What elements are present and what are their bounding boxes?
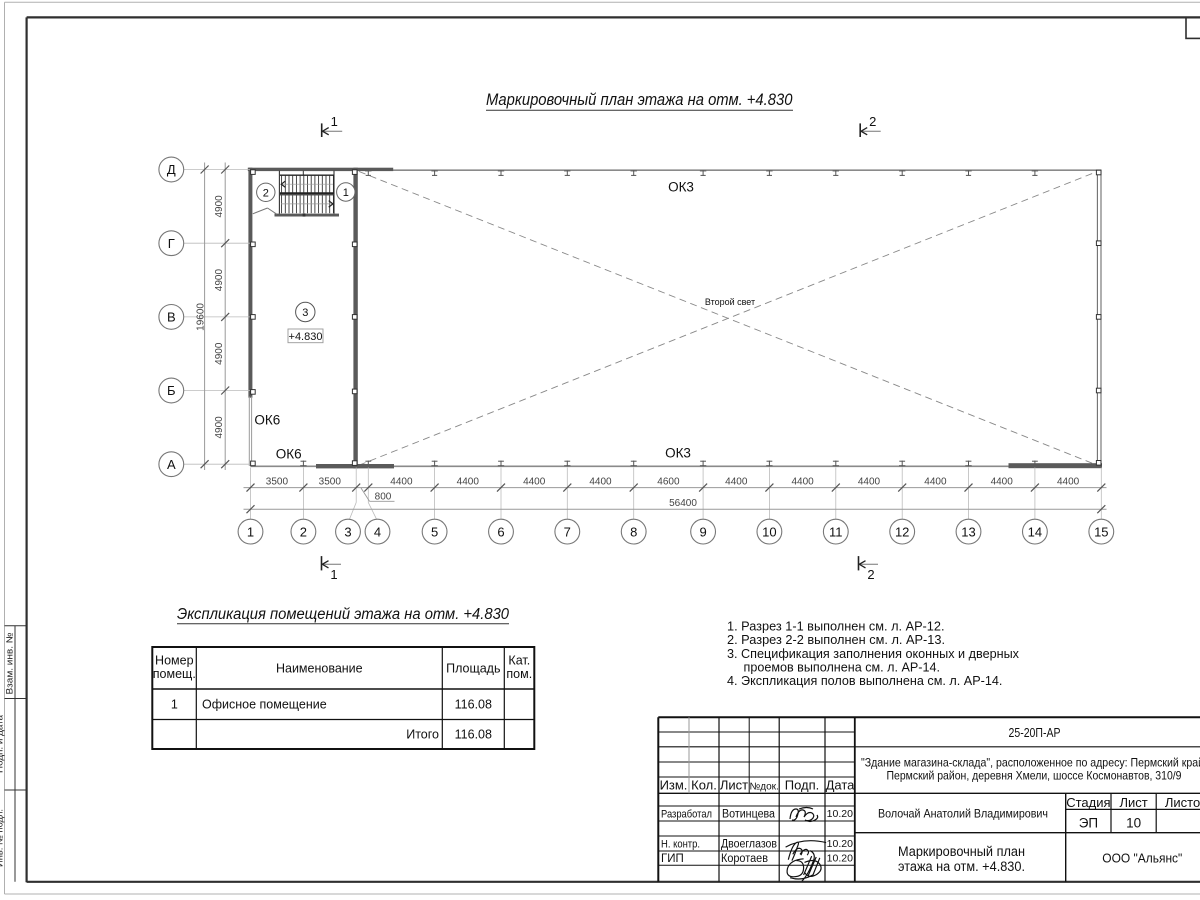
svg-text:10: 10 [762, 524, 776, 539]
svg-text:Дата: Дата [826, 778, 856, 793]
svg-text:Пермский район, деревня Хмели,: Пермский район, деревня Хмели, шоссе Кос… [887, 768, 1182, 782]
svg-text:ГИП: ГИП [661, 853, 684, 865]
svg-text:Кол.: Кол. [691, 778, 717, 793]
svg-text:5: 5 [431, 524, 438, 539]
svg-text:4400: 4400 [791, 476, 814, 487]
svg-text:1: 1 [343, 187, 349, 199]
svg-text:13: 13 [961, 524, 975, 539]
svg-text:Изм.: Изм. [660, 778, 688, 793]
svg-text:ООО "Альянс": ООО "Альянс" [1102, 851, 1182, 866]
svg-text:ОК3: ОК3 [665, 445, 691, 460]
svg-text:4900: 4900 [214, 416, 225, 439]
svg-text:Маркировочный план: Маркировочный план [898, 844, 1025, 859]
svg-text:+4.830: +4.830 [289, 331, 323, 343]
svg-text:4400: 4400 [523, 476, 546, 487]
svg-text:4400: 4400 [457, 476, 480, 487]
svg-text:2: 2 [869, 114, 876, 129]
svg-text:3: 3 [344, 524, 351, 539]
svg-text:пом.: пом. [506, 667, 532, 681]
svg-text:10: 10 [1126, 816, 1141, 831]
svg-text:Итого: Итого [406, 728, 439, 742]
svg-text:Разработал: Разработал [661, 809, 712, 821]
svg-text:Экспликация помещений этажа на: Экспликация помещений этажа на отм. +4.8… [177, 606, 509, 623]
svg-text:116.08: 116.08 [455, 728, 492, 742]
svg-text:А: А [167, 457, 176, 472]
svg-text:56400: 56400 [669, 498, 697, 509]
svg-text:ОК6: ОК6 [254, 412, 280, 427]
svg-text:8: 8 [630, 524, 637, 539]
svg-text:Подп.: Подп. [785, 778, 820, 793]
svg-text:4900: 4900 [214, 342, 225, 365]
svg-text:1: 1 [331, 114, 338, 129]
svg-text:3: 3 [302, 307, 308, 319]
svg-text:4400: 4400 [991, 476, 1014, 487]
svg-text:"Здание магазина-склада", расп: "Здание магазина-склада", расположенное … [861, 755, 1200, 769]
svg-text:3500: 3500 [266, 476, 289, 487]
svg-text:Д: Д [167, 162, 176, 177]
svg-text:Подп. и дата: Подп. и дата [0, 715, 5, 773]
svg-text:2: 2 [867, 567, 874, 582]
svg-text:4400: 4400 [589, 476, 612, 487]
svg-text:4600: 4600 [657, 476, 680, 487]
svg-text:1: 1 [247, 524, 254, 539]
svg-text:ЭП: ЭП [1079, 816, 1098, 831]
svg-text:Кат.: Кат. [508, 654, 530, 668]
svg-text:15: 15 [1094, 524, 1108, 539]
svg-text:В: В [167, 310, 176, 325]
svg-text:Второй свет: Второй свет [705, 297, 755, 307]
svg-text:19600: 19600 [195, 303, 206, 331]
svg-text:4900: 4900 [214, 195, 225, 218]
svg-text:Взам. инв. №: Взам. инв. № [5, 632, 15, 694]
svg-text:1: 1 [171, 698, 178, 712]
svg-text:Вотинцева: Вотинцева [722, 809, 776, 821]
svg-text:6: 6 [497, 524, 504, 539]
svg-text:ОК3: ОК3 [668, 179, 694, 194]
svg-text:14: 14 [1028, 524, 1042, 539]
svg-text:10.20: 10.20 [827, 853, 853, 865]
svg-text:4400: 4400 [858, 476, 881, 487]
svg-text:4: 4 [374, 524, 381, 539]
svg-text:Н. контр.: Н. контр. [661, 839, 700, 851]
svg-text:3500: 3500 [319, 476, 342, 487]
svg-text:Волочай Анатолий Владимирович: Волочай Анатолий Владимирович [878, 807, 1048, 821]
svg-text:1: 1 [330, 567, 337, 582]
svg-text:4900: 4900 [214, 269, 225, 292]
svg-text:4400: 4400 [924, 476, 947, 487]
svg-text:4400: 4400 [390, 476, 413, 487]
svg-text:2: 2 [263, 187, 269, 199]
svg-text:10.20: 10.20 [827, 838, 853, 850]
svg-text:Офисное помещение: Офисное помещение [202, 698, 327, 712]
svg-text:помещ.: помещ. [153, 667, 196, 681]
svg-text:Стадия: Стадия [1066, 795, 1110, 810]
svg-text:4. Экспликация полов выполнена: 4. Экспликация полов выполнена см. л. АР… [727, 673, 1002, 688]
svg-text:Лист: Лист [1119, 795, 1147, 810]
svg-text:11: 11 [829, 524, 843, 539]
svg-text:Листов: Листов [1165, 795, 1200, 810]
svg-text:Площадь: Площадь [446, 662, 500, 676]
svg-text:4400: 4400 [725, 476, 748, 487]
svg-text:Номер: Номер [155, 654, 194, 668]
svg-text:№док.: №док. [750, 781, 779, 792]
svg-text:25-20П-АР: 25-20П-АР [1009, 726, 1061, 740]
svg-text:Коротаев: Коротаев [721, 853, 768, 865]
svg-text:10.20: 10.20 [827, 808, 853, 820]
svg-text:7: 7 [564, 524, 571, 539]
svg-text:Наименование: Наименование [276, 662, 363, 676]
svg-text:116.08: 116.08 [455, 698, 492, 712]
svg-text:9: 9 [699, 524, 706, 539]
svg-text:2: 2 [300, 524, 307, 539]
svg-text:Маркировочный план этажа на от: Маркировочный план этажа на отм. +4.830 [486, 90, 793, 109]
svg-text:Б: Б [167, 383, 176, 398]
svg-text:Инв. № подл.: Инв. № подл. [0, 809, 5, 867]
svg-text:800: 800 [375, 492, 392, 503]
svg-text:12: 12 [895, 524, 909, 539]
svg-text:Г: Г [168, 236, 175, 251]
svg-text:этажа на отм. +4.830.: этажа на отм. +4.830. [898, 859, 1025, 874]
svg-text:ОК6: ОК6 [276, 446, 302, 461]
svg-text:Двоеглазов: Двоеглазов [721, 839, 777, 851]
svg-text:4400: 4400 [1057, 476, 1080, 487]
svg-text:Лист: Лист [720, 778, 748, 793]
